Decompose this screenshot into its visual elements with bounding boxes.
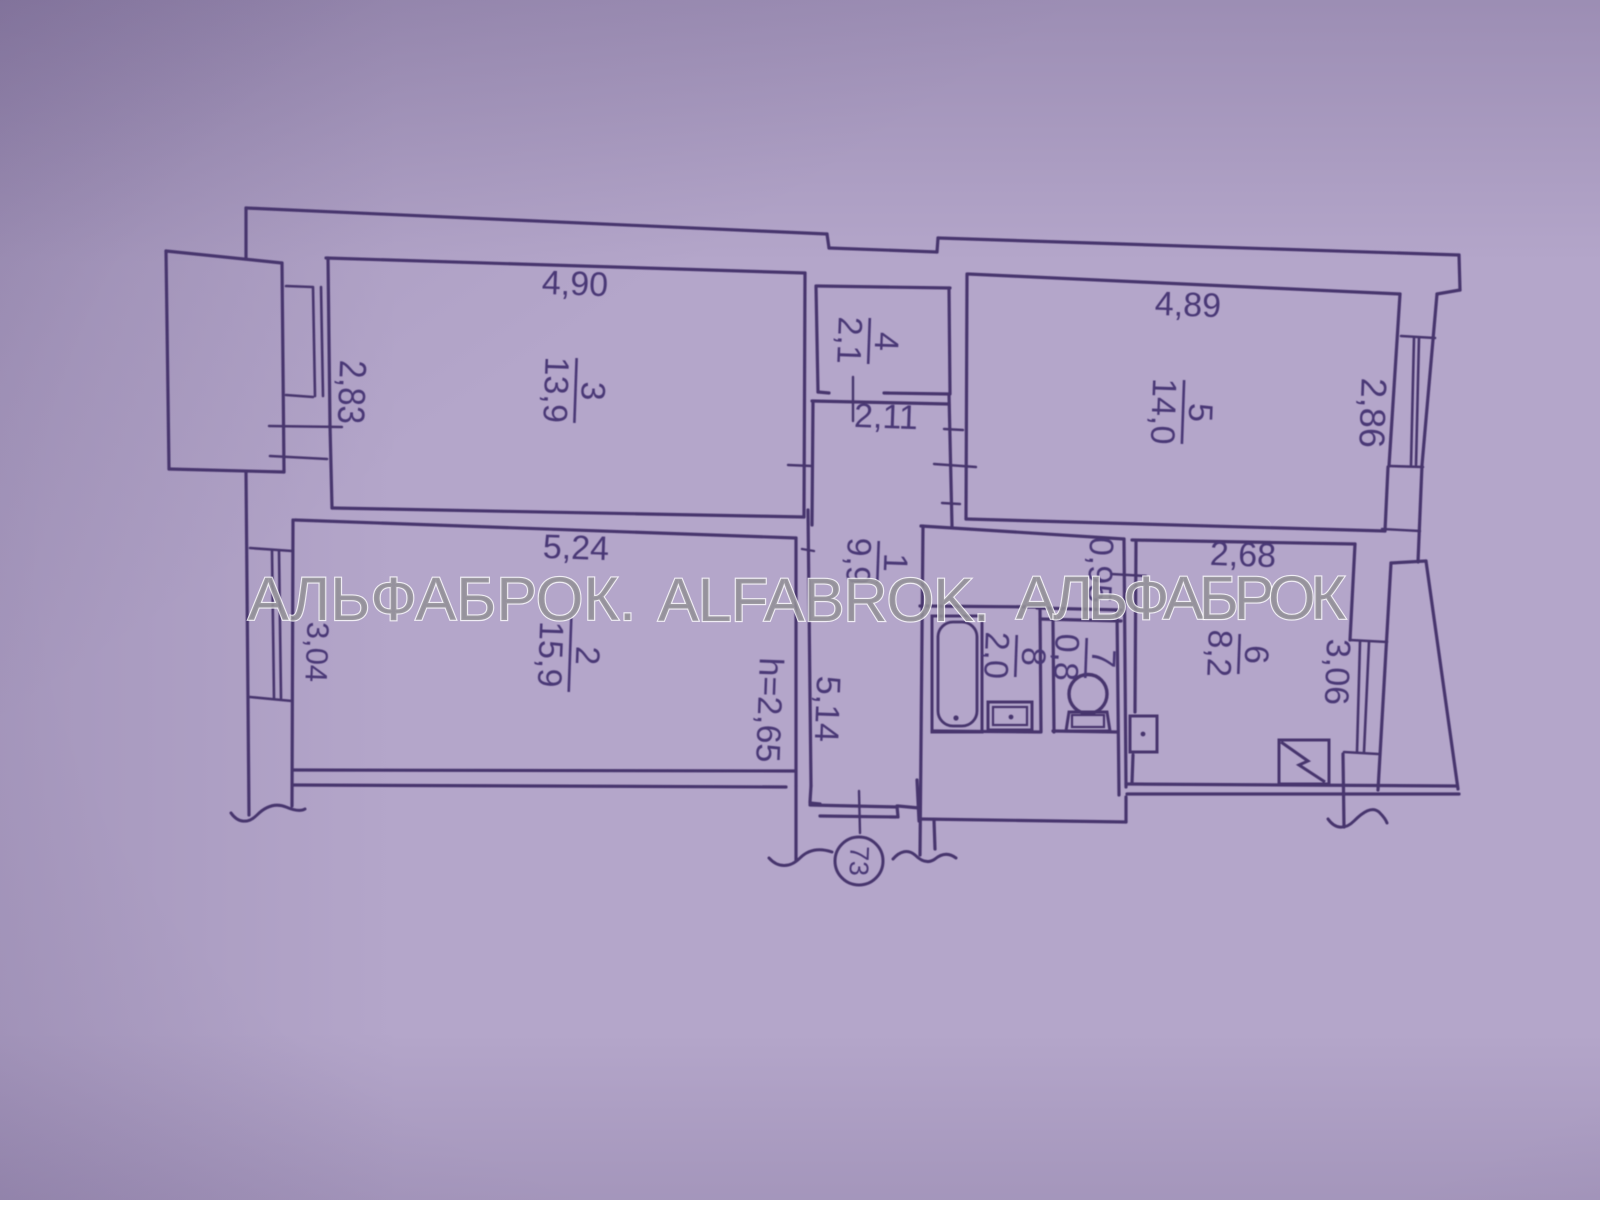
svg-text:13,9: 13,9 bbox=[535, 356, 575, 423]
svg-text:8,2: 8,2 bbox=[1199, 629, 1239, 678]
svg-text:ALFABROK.: ALFABROK. bbox=[658, 566, 990, 634]
svg-text:2,1: 2,1 bbox=[829, 316, 869, 365]
svg-text:2,0: 2,0 bbox=[976, 631, 1016, 680]
svg-text:5: 5 bbox=[1181, 402, 1220, 422]
svg-text:АЛЬФАБРОК.: АЛЬФАБРОК. bbox=[248, 565, 636, 633]
svg-text:8: 8 bbox=[1014, 646, 1053, 666]
svg-text:73: 73 bbox=[843, 845, 874, 876]
svg-text:14,0: 14,0 bbox=[1143, 378, 1183, 445]
svg-text:4,90: 4,90 bbox=[541, 264, 609, 305]
svg-text:5,14: 5,14 bbox=[807, 675, 847, 742]
svg-text:6: 6 bbox=[1237, 644, 1276, 664]
svg-text:4,89: 4,89 bbox=[1154, 285, 1221, 325]
svg-text:3: 3 bbox=[573, 381, 612, 401]
svg-text:4: 4 bbox=[867, 331, 906, 351]
svg-text:2,83: 2,83 bbox=[329, 359, 373, 424]
svg-text:5,24: 5,24 bbox=[542, 528, 609, 568]
svg-text:2: 2 bbox=[568, 645, 607, 665]
svg-text:7: 7 bbox=[1084, 648, 1123, 668]
svg-text:АЛЬФАБРОК: АЛЬФАБРОК bbox=[1016, 564, 1346, 632]
svg-text:3,06: 3,06 bbox=[1317, 638, 1357, 705]
svg-text:2,11: 2,11 bbox=[854, 397, 919, 437]
svg-text:h=2,65: h=2,65 bbox=[748, 657, 790, 763]
svg-text:2,86: 2,86 bbox=[1351, 377, 1394, 448]
